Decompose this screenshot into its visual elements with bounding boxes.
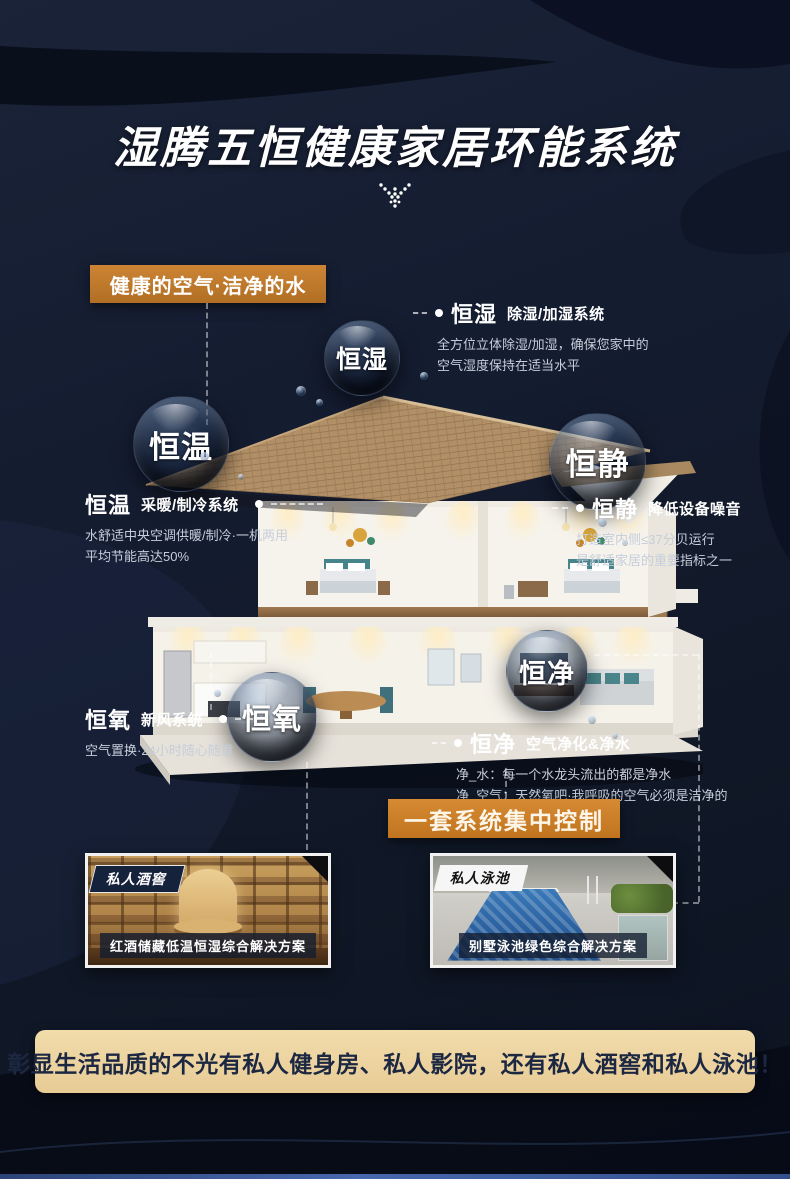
feature-name: 恒温: [85, 488, 131, 520]
bubble-hengjing-water: 恒净: [506, 630, 588, 712]
droplet: [200, 452, 209, 461]
card-corner-ribbon: [302, 856, 328, 882]
feature-hengjing: 恒静 降低设备噪音 打造室内侧≤37分贝运行 是舒适家居的重要指标之一: [552, 492, 782, 572]
card-caption: 别墅泳池绿色综合解决方案: [459, 933, 647, 958]
connector-dash: [552, 507, 568, 509]
feature-desc: 平均节能高达50%: [85, 547, 335, 568]
card-tag: 私人酒窖: [89, 865, 186, 893]
connector-line: [698, 654, 700, 902]
connector-dash: [235, 718, 253, 720]
bubble-highlight: [149, 404, 202, 432]
connector-dot: [219, 715, 227, 723]
feature-desc: 打造室内侧≤37分贝运行: [576, 530, 782, 551]
feature-desc: 是舒适家居的重要指标之一: [576, 551, 782, 572]
bubble-hengshi: 恒湿: [324, 320, 400, 396]
feature-desc: 空气置换·24小时随心随意: [85, 741, 325, 762]
connector-dash: [413, 312, 427, 314]
feature-desc: 空气湿度保持在适当水平: [437, 356, 683, 377]
connector-line: [306, 762, 308, 850]
bubble-highlight: [242, 679, 291, 705]
bottom-banner: 彰显生活品质的不光有私人健身房、私人影院，还有私人酒窖和私人泳池！: [35, 1030, 755, 1093]
connector-line: [594, 654, 698, 656]
connector-dash: [271, 503, 323, 505]
feature-system: 空气净化&净水: [526, 733, 630, 754]
bubble-hengwen: 恒温: [133, 396, 229, 492]
connector-dot: [255, 500, 263, 508]
pool-ladder: [587, 876, 598, 904]
card-corner-ribbon: [647, 856, 673, 882]
brand-v-icon: [377, 182, 413, 212]
droplet: [316, 399, 323, 406]
connector-dot: [576, 504, 584, 512]
feature-name: 恒净: [470, 727, 516, 759]
card-caption: 红酒储藏低温恒湿综合解决方案: [100, 933, 316, 958]
poster: 湿腾五恒健康家居环能系统 健康的空气·洁净的水: [0, 0, 790, 1179]
control-banner: 一套系统集中控制: [388, 799, 620, 838]
feature-system: 新风系统: [141, 709, 203, 730]
page-title: 湿腾五恒健康家居环能系统: [0, 112, 790, 176]
feature-system: 采暖/制冷系统: [141, 494, 239, 515]
solution-card-pool: 私人泳池 别墅泳池绿色综合解决方案: [430, 853, 676, 968]
feature-hengshi: 恒湿 除湿/加湿系统 全方位立体除湿/加湿，确保您家中的 空气湿度保持在适当水平: [413, 297, 683, 377]
connector-dot: [454, 739, 462, 747]
connector-line: [210, 652, 212, 710]
pool-bush: [611, 884, 673, 912]
droplet: [296, 386, 306, 396]
feature-desc: 水舒适中央空调供暖/制冷·一机两用: [85, 526, 335, 547]
feature-name: 恒静: [592, 492, 638, 524]
feature-system: 降低设备噪音: [648, 498, 741, 519]
bottom-accent-strip: [0, 1174, 790, 1179]
bubble-highlight: [520, 637, 565, 661]
air-water-badge: 健康的空气·洁净的水: [90, 265, 326, 303]
feature-desc: 全方位立体除湿/加湿，确保您家中的: [437, 335, 683, 356]
feature-name: 恒氧: [85, 703, 131, 735]
droplet: [588, 716, 596, 724]
droplet: [214, 690, 221, 697]
droplet: [238, 474, 244, 480]
connector-dot: [435, 309, 443, 317]
connector-dash: [432, 742, 446, 744]
solution-card-wine: 私人酒窖 红酒储藏低温恒湿综合解决方案: [85, 853, 331, 968]
feature-hengjing-water: 恒净 空气净化&净水 净_水：每一个水龙头流出的都是净水 净_空气：天然氧吧·我…: [432, 727, 742, 807]
feature-system: 除湿/加湿系统: [507, 303, 605, 324]
feature-name: 恒湿: [451, 297, 497, 329]
feature-hengwen: 恒温 采暖/制冷系统 水舒适中央空调供暖/制冷·一机两用 平均节能高达50%: [85, 488, 335, 568]
bubble-highlight: [565, 421, 618, 450]
connector-line: [505, 770, 507, 798]
feature-hengyang: 恒氧 新风系统 空气置换·24小时随心随意: [85, 703, 325, 762]
card-tag: 私人泳池: [434, 865, 528, 891]
connector-line: [672, 902, 699, 904]
